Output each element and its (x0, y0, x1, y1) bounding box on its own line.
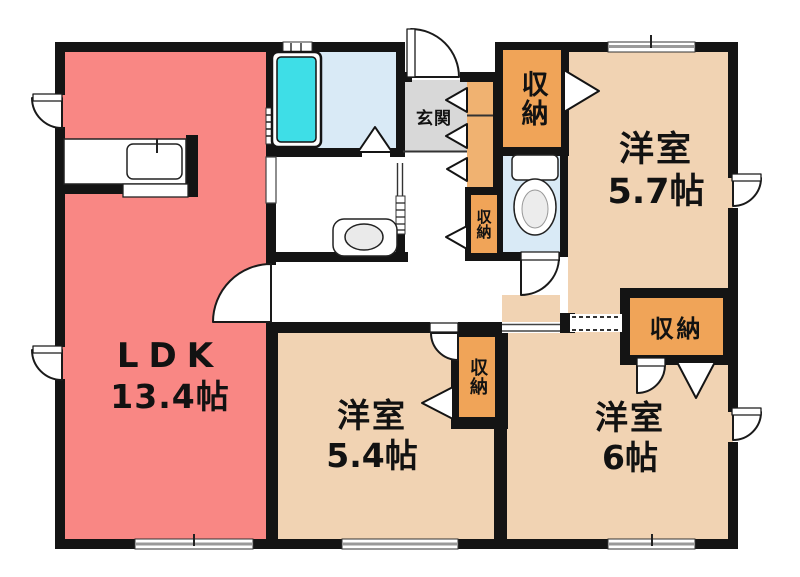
toilet-icon (512, 155, 558, 235)
room-name: 洋室 (570, 129, 742, 171)
closet-label-entry-hall: 収納 (503, 50, 561, 147)
closet-name: 収納 (650, 309, 704, 344)
closet-name: 収納 (474, 209, 495, 239)
floor-plan: LDK 13.4帖 洋室 5.7帖 洋室 5.4帖 洋室 6帖 玄関 収納 収納… (0, 0, 800, 577)
exterior-door-6 (732, 408, 761, 440)
closet-label-bedroom-5-4: 収納 (459, 337, 495, 417)
toilet-door (521, 252, 559, 295)
bathroom-vent-window (283, 42, 312, 52)
closet-name: 収納 (513, 70, 552, 128)
room-label-bedroom-6: 洋室 6帖 (546, 398, 714, 477)
room-label-ldk: LDK 13.4帖 (85, 336, 255, 416)
room-name: 洋室 (288, 396, 456, 436)
back-door-lower (32, 346, 62, 380)
room-label-genkan: 玄関 (401, 82, 467, 150)
room-name: LDK (85, 336, 255, 377)
bathtub-icon (272, 52, 321, 147)
room-label-bedroom-5-4: 洋室 5.4帖 (288, 396, 456, 475)
open-doorway-bedroom-6 (502, 322, 560, 333)
room-name: 玄関 (416, 104, 452, 129)
room-label-bedroom-5-7: 洋室 5.7帖 (570, 129, 742, 213)
room-size: 5.4帖 (288, 436, 456, 476)
closet-name: 収納 (464, 358, 490, 396)
kitchen-sink-icon (127, 144, 182, 179)
back-door-upper (32, 94, 62, 128)
room-size: 13.4帖 (85, 377, 255, 417)
open-doorway-dashed (570, 314, 622, 332)
window-5-4-south (342, 539, 458, 549)
closet-label-hallway: 収納 (471, 195, 497, 253)
room-size: 6帖 (546, 438, 714, 478)
room-size: 5.7帖 (570, 171, 742, 213)
room-name: 洋室 (546, 398, 714, 438)
closet-label-bedroom-6: 収納 (630, 298, 723, 355)
wash-basin-icon (333, 219, 397, 256)
window-5-7-north (608, 35, 695, 52)
shoe-cabinet-strip (467, 82, 493, 187)
entrance-door (407, 29, 459, 77)
floor-plan-drawing (0, 0, 800, 577)
